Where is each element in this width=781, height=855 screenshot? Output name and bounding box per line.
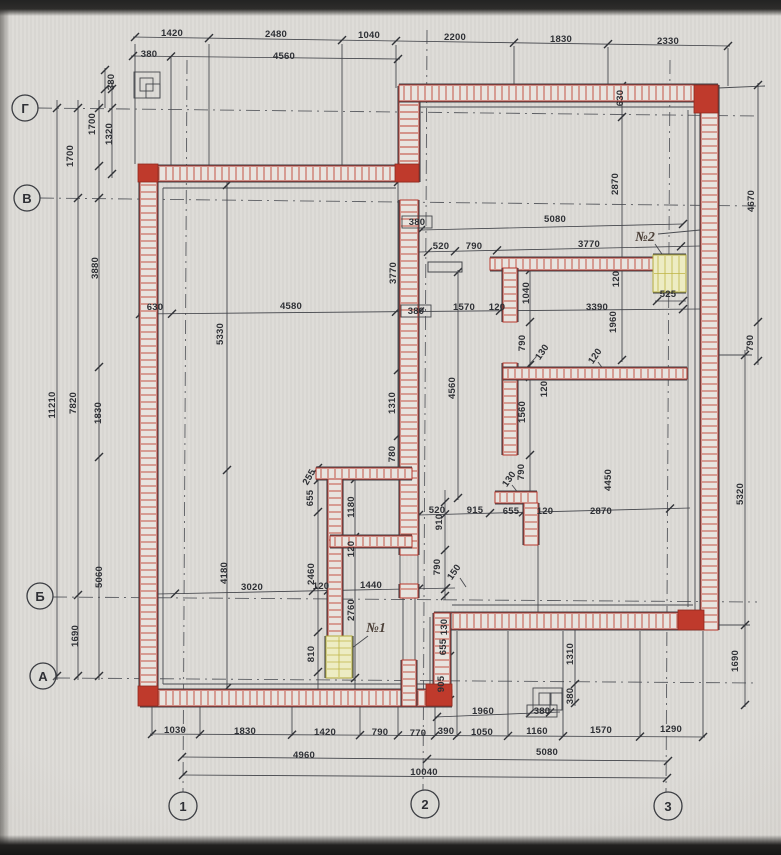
dimension-label: 1960 xyxy=(608,311,619,333)
wall-corner-block xyxy=(138,164,158,182)
dimension-label: 380 xyxy=(408,306,424,317)
dimension-label: 1690 xyxy=(730,650,741,672)
dimension-label: 1040 xyxy=(521,282,532,304)
dimension-label: 520 xyxy=(433,241,449,252)
dimension-label: 120 xyxy=(346,541,357,557)
dimension-label: 120 xyxy=(611,271,622,287)
axis-marker-label: Г xyxy=(21,101,29,116)
dimension-label: 3770 xyxy=(388,262,399,284)
dimension-label: 1420 xyxy=(314,727,336,738)
dimension-label: 1160 xyxy=(526,726,547,737)
construction-line xyxy=(460,578,466,587)
dimension-label: 2480 xyxy=(265,29,287,40)
dimension-label: 4560 xyxy=(273,51,295,62)
dimension-label: 790 xyxy=(516,464,527,480)
dimension-label: 380 xyxy=(106,74,117,90)
axis-marker-label: 1 xyxy=(179,799,186,814)
wall-corner-block xyxy=(138,686,158,706)
dimension-label: 2870 xyxy=(610,173,621,195)
chimney-detail xyxy=(140,78,153,91)
room-label: №2 xyxy=(634,230,655,245)
dimension-label: 380 xyxy=(534,706,550,717)
dimension-label: 2870 xyxy=(590,506,612,517)
dimension-label: 120 xyxy=(489,302,505,313)
axis-marker-label: Б xyxy=(35,589,44,604)
brick-wall xyxy=(503,368,687,379)
dimension-label: 1180 xyxy=(346,496,357,517)
brick-wall xyxy=(503,268,517,322)
axis-marker-label: 3 xyxy=(664,799,671,814)
dimension-label: 655 xyxy=(438,638,449,655)
dimension-label: 4670 xyxy=(746,190,757,212)
dimension-label: 120 xyxy=(539,381,550,397)
chimney-detail xyxy=(134,72,160,98)
dimension-label: 130 xyxy=(439,619,450,635)
dimension-label: 130 xyxy=(533,342,551,362)
dimension-label: 380 xyxy=(409,217,425,228)
dimension-label: 1700 xyxy=(65,145,76,167)
dimension-label: 915 xyxy=(467,505,484,516)
dimension-label: 790 xyxy=(432,559,443,575)
brick-wall xyxy=(140,166,399,181)
construction-line xyxy=(658,230,700,234)
brick-wall xyxy=(402,660,416,706)
dimension-label: 1440 xyxy=(360,580,382,591)
axis-marker-label: А xyxy=(38,669,48,684)
dimension-line xyxy=(419,246,700,252)
dimension-label: 2330 xyxy=(657,36,679,47)
floor-plan-drawing: 1420248010402200183023303804560380170013… xyxy=(0,0,781,855)
dimension-label: 1310 xyxy=(387,392,398,414)
dimension-label: 5080 xyxy=(536,747,558,758)
wall-corner-block xyxy=(694,85,718,113)
dimension-label: 4180 xyxy=(219,562,230,584)
dimension-label: 790 xyxy=(466,241,482,252)
dimension-label: 1320 xyxy=(104,123,115,145)
dimension-label: 525 xyxy=(660,289,677,300)
dimension-label: 1420 xyxy=(161,28,183,39)
dimension-label: 5330 xyxy=(215,323,226,345)
dimension-label: 380 xyxy=(141,49,157,60)
dimension-line xyxy=(419,508,690,515)
dimension-label: 1570 xyxy=(590,725,612,736)
dimension-label: 3880 xyxy=(90,257,101,279)
dimension-label: 120 xyxy=(313,581,329,592)
axis-line xyxy=(423,30,427,790)
chimney-detail xyxy=(550,693,562,710)
room-label: №1 xyxy=(365,621,386,636)
dimension-label: 380 xyxy=(565,688,576,704)
dimension-label: 790 xyxy=(517,335,528,351)
brick-wall xyxy=(400,584,418,598)
dimension-label: 655 xyxy=(305,489,316,506)
dimension-line xyxy=(133,37,730,46)
brick-wall xyxy=(400,200,418,555)
dimension-label: 630 xyxy=(615,90,626,106)
dimension-label: 1960 xyxy=(472,706,494,717)
brick-wall xyxy=(495,492,537,503)
dimension-label: 1050 xyxy=(471,727,493,738)
dimension-label: 4450 xyxy=(603,469,614,491)
dimension-label: 390 xyxy=(438,726,454,737)
dimension-label: 790 xyxy=(745,335,756,351)
dimension-label: 10040 xyxy=(410,767,437,778)
dimension-label: 810 xyxy=(306,646,317,662)
dimension-label: 4560 xyxy=(447,377,458,399)
brick-wall xyxy=(328,479,342,639)
dimension-label: 11210 xyxy=(47,392,58,419)
dimension-label: 1290 xyxy=(660,724,682,735)
dimension-label: 780 xyxy=(387,446,398,462)
dimension-label: 630 xyxy=(147,302,163,313)
dimension-label: 905 xyxy=(436,675,447,692)
dimension-label: 5060 xyxy=(94,566,105,588)
dimension-label: 5320 xyxy=(735,483,746,505)
dimension-label: 1830 xyxy=(234,726,256,737)
dimension-label: 3770 xyxy=(578,239,600,250)
axis-marker-label: 2 xyxy=(421,797,428,812)
dimension-label: 1830 xyxy=(550,34,572,45)
dimension-label: 770 xyxy=(410,728,426,739)
axis-marker-label: В xyxy=(22,191,31,206)
dimension-label: 1690 xyxy=(70,625,81,647)
chimney-detail xyxy=(539,693,551,705)
dimension-label: 120 xyxy=(586,346,604,366)
dimension-label: 1700 xyxy=(87,113,98,135)
dimension-label: 1040 xyxy=(358,30,380,41)
wall-corner-block xyxy=(395,164,419,182)
dimension-label: 3390 xyxy=(586,302,608,313)
dimension-label: 1310 xyxy=(565,643,576,665)
brick-wall xyxy=(140,166,157,706)
dimension-label: 790 xyxy=(372,727,388,738)
dimension-label: 4960 xyxy=(293,750,315,761)
dimension-label: 655 xyxy=(503,506,520,517)
dimension-label: 3020 xyxy=(241,582,263,593)
construction-line xyxy=(527,357,536,367)
dimension-label: 7820 xyxy=(68,392,79,414)
wall-outline xyxy=(428,262,462,272)
dimension-label: 910 xyxy=(434,514,445,530)
dimension-label: 2760 xyxy=(346,599,357,621)
dimension-label: 4580 xyxy=(280,301,302,312)
dimension-label: 1830 xyxy=(93,402,104,424)
dimension-label: 2200 xyxy=(444,32,466,43)
wall-corner-block xyxy=(678,610,704,630)
dimension-label: 1570 xyxy=(453,302,475,313)
dimension-label: 1560 xyxy=(517,401,528,423)
dimension-label: 5080 xyxy=(544,214,566,225)
dimension-label: 120 xyxy=(537,506,553,517)
dimension-label: 1030 xyxy=(164,725,186,736)
scanned-photo-background: 1420248010402200183023303804560380170013… xyxy=(0,0,781,855)
